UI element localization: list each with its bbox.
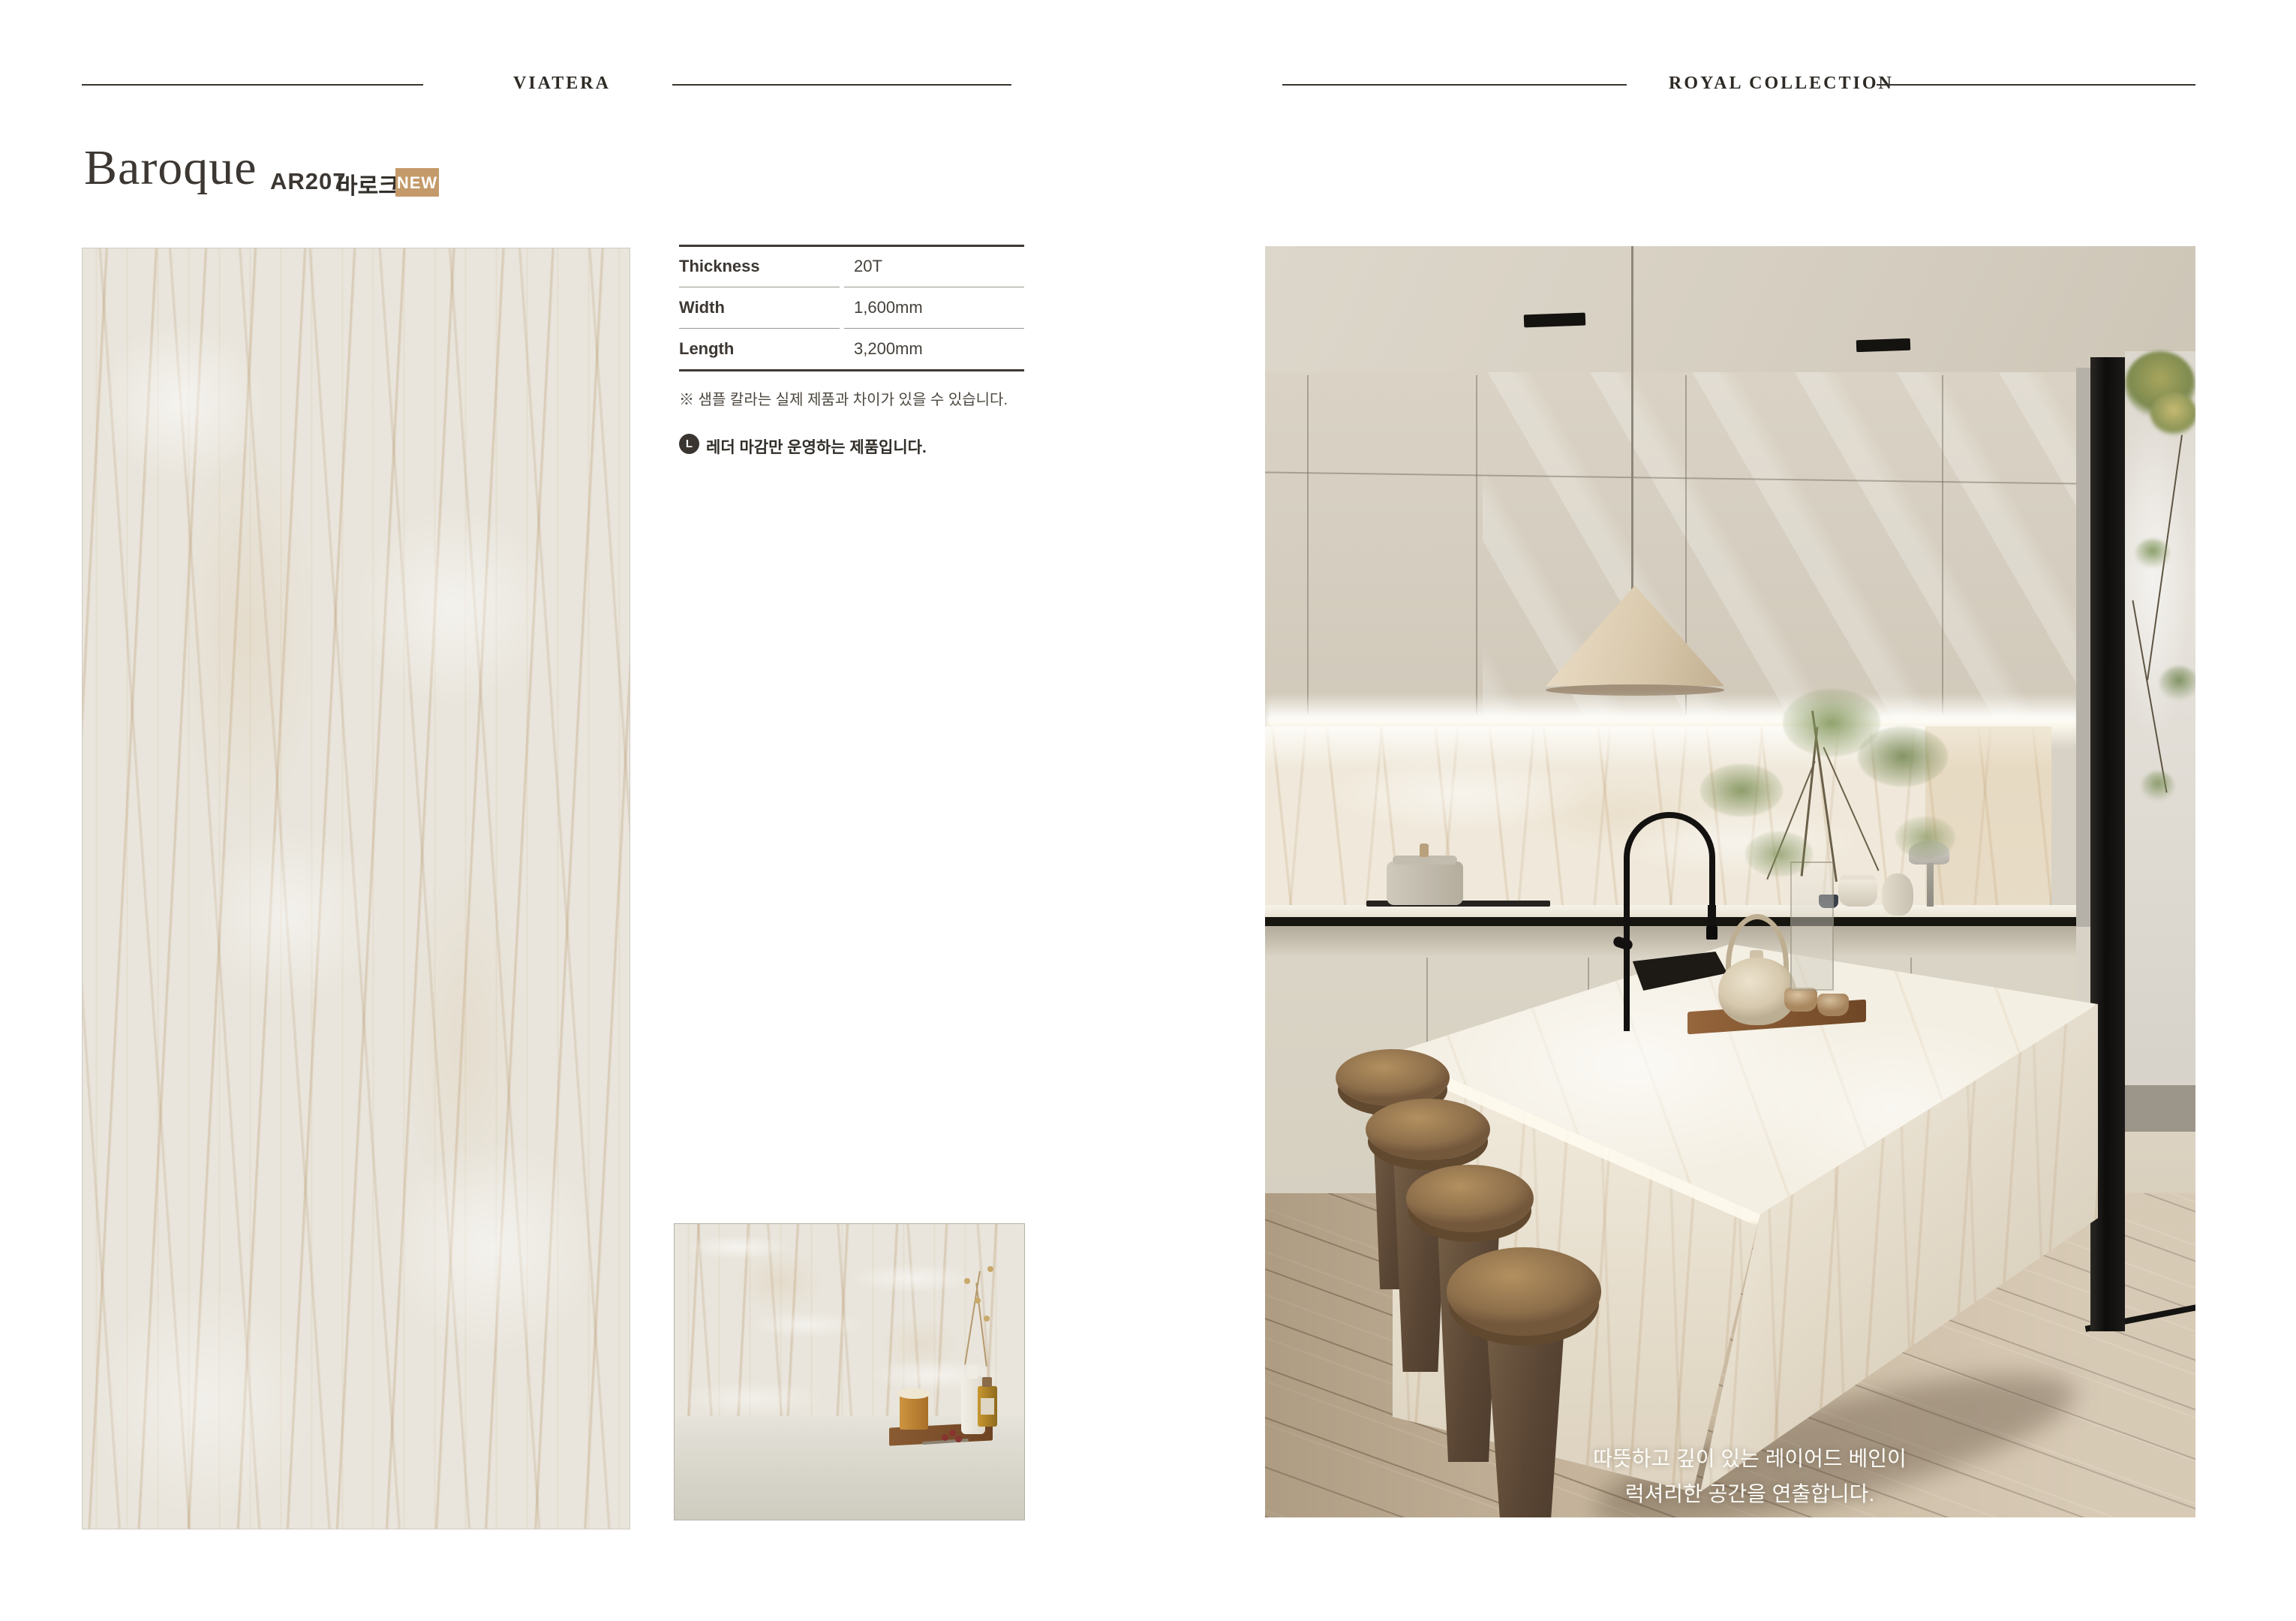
oil-bottle-label bbox=[981, 1398, 994, 1415]
foliage bbox=[2159, 666, 2195, 701]
oil-bottle-cork bbox=[982, 1377, 992, 1387]
brand-logo: VIATERA bbox=[513, 74, 611, 94]
product-code: AR207 bbox=[270, 168, 347, 195]
spec-value: 20T bbox=[854, 257, 882, 276]
product-name: Baroque bbox=[84, 140, 257, 197]
table-rule-row bbox=[679, 287, 840, 287]
cork-stool-seat bbox=[1447, 1247, 1601, 1336]
seed-pod bbox=[987, 1266, 993, 1272]
outdoor-terrace bbox=[2125, 1085, 2195, 1132]
wall-jamb bbox=[2076, 368, 2090, 927]
cabinet-seam bbox=[1476, 375, 1477, 714]
cake-top bbox=[897, 1388, 930, 1399]
ceramic-vase bbox=[1882, 874, 1913, 916]
seed-pod bbox=[964, 1278, 970, 1284]
header-rule-right-2 bbox=[1877, 84, 2195, 86]
kitchen-photo: 따뜻하고 깊이 있는 레이어드 베인이 럭셔리한 공간을 연출합니다. bbox=[1265, 246, 2195, 1517]
product-korean-name: 바로크 bbox=[337, 167, 399, 200]
cabinet-seam bbox=[1307, 375, 1309, 714]
tea-cup bbox=[1784, 988, 1817, 1012]
berry bbox=[949, 1430, 956, 1436]
spec-label: Length bbox=[679, 339, 734, 359]
berry bbox=[942, 1434, 948, 1441]
faucet-nozzle bbox=[1706, 926, 1717, 940]
new-badge: NEW bbox=[395, 168, 439, 197]
sample-color-note: ※ 샘플 칼라는 실제 제품과 차이가 있을 수 있습니다. bbox=[679, 387, 1008, 409]
photo-caption: 따뜻하고 깊이 있는 레이어드 베인이 럭셔리한 공간을 연출합니다. bbox=[1285, 1441, 2195, 1511]
recessed-light bbox=[1856, 338, 1911, 353]
green-leaves bbox=[1895, 817, 1955, 859]
faucet-arch bbox=[1624, 812, 1715, 911]
foliage bbox=[2141, 771, 2174, 801]
outdoor-concrete-wall bbox=[2125, 351, 2195, 1102]
foliage bbox=[2150, 392, 2195, 436]
cooking-pot bbox=[1387, 862, 1463, 905]
cork-stool-seat bbox=[1406, 1165, 1534, 1232]
cabinet-seam bbox=[1942, 375, 1943, 714]
pendant-cord bbox=[1631, 246, 1633, 590]
pot-knob bbox=[1420, 844, 1429, 857]
green-leaves bbox=[1700, 764, 1783, 817]
berry bbox=[955, 1436, 962, 1442]
seed-pod bbox=[984, 1316, 990, 1322]
vase-neck bbox=[968, 1365, 978, 1379]
spec-value: 3,200mm bbox=[854, 339, 923, 359]
caption-line-1: 따뜻하고 깊이 있는 레이어드 베인이 bbox=[1285, 1441, 2195, 1476]
green-leaves bbox=[1858, 726, 1948, 786]
spec-label: Thickness bbox=[679, 257, 760, 276]
glass-vase bbox=[1790, 862, 1834, 991]
table-rule-row bbox=[679, 328, 840, 329]
table-rule-top bbox=[679, 245, 1024, 247]
foliage bbox=[2135, 539, 2170, 569]
recessed-light bbox=[1524, 313, 1586, 328]
stacked-bowls bbox=[1838, 880, 1877, 907]
leather-finish-icon: L bbox=[679, 434, 699, 454]
back-counter-edge bbox=[1265, 917, 2076, 926]
faucet-sprayer bbox=[1708, 905, 1716, 928]
header-rule-right-1 bbox=[1282, 84, 1627, 86]
collection-title: ROYAL COLLECTION bbox=[1669, 74, 1894, 94]
table-rule-bottom bbox=[679, 369, 1024, 371]
seed-pod bbox=[975, 1298, 981, 1304]
table-rule-row bbox=[844, 287, 1024, 287]
tea-cup bbox=[1817, 994, 1849, 1016]
cork-stool-seat bbox=[1366, 1099, 1490, 1160]
header-rule-left-2 bbox=[672, 84, 1011, 86]
cake bbox=[900, 1394, 928, 1430]
table-rule-row bbox=[844, 328, 1024, 329]
green-leaves bbox=[1745, 832, 1813, 877]
spec-label: Width bbox=[679, 298, 725, 317]
header-rule-left-1 bbox=[82, 84, 423, 86]
catalog-page: { "header_left": { "brand": "VIATERA" },… bbox=[0, 0, 2296, 1621]
detail-photo bbox=[674, 1223, 1025, 1520]
leather-finish-note: 레더 마감만 운영하는 제품입니다. bbox=[706, 435, 927, 458]
faucet-body bbox=[1624, 907, 1630, 1031]
caption-line-2: 럭셔리한 공간을 연출합니다. bbox=[1285, 1476, 2195, 1511]
spec-value: 1,600mm bbox=[854, 298, 923, 317]
material-swatch-image bbox=[82, 248, 630, 1529]
counter-lamp-stem bbox=[1927, 863, 1934, 907]
cork-stool-seat bbox=[1336, 1049, 1450, 1106]
